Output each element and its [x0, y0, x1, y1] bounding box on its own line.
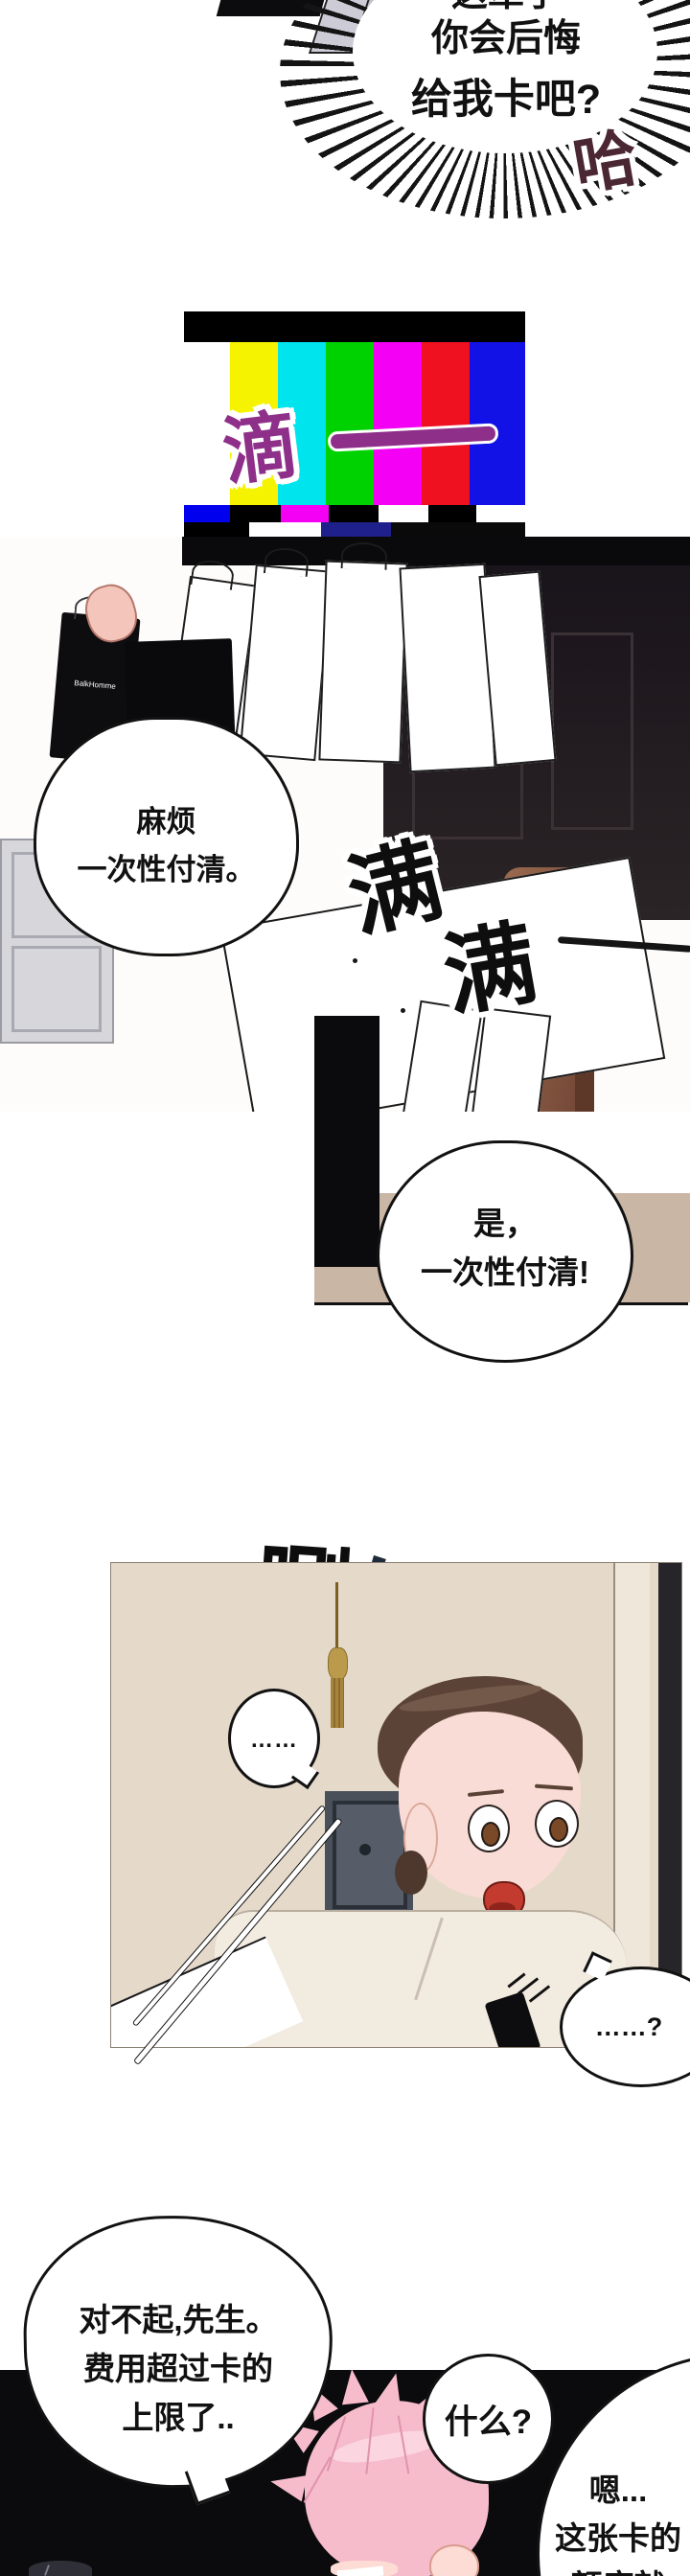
manager-hair: [29, 2561, 92, 2576]
reply-bubble-text: 嗯... 这张卡的 额度就: [546, 2471, 690, 2576]
clerk-iris-left: [481, 1822, 500, 1847]
dark-cabinet-frame1: [333, 1801, 407, 1909]
clerk-eye-right: [535, 1800, 579, 1848]
clerk-iris-right: [549, 1817, 568, 1842]
clerk-eye-left: [468, 1805, 510, 1852]
white-bag-3-handle: [341, 541, 388, 570]
tv-bar-magenta: [374, 342, 422, 505]
tassel-threads: [331, 1678, 344, 1728]
tv-bar-green: [326, 342, 374, 505]
gray-cabinet-square2: [11, 946, 102, 1032]
reply-line2: 这张卡的: [546, 2518, 690, 2560]
white-bag-3: [318, 561, 407, 764]
shout-line-clipped: 这辈子: [372, 0, 640, 10]
reply-line1: 嗯...: [546, 2471, 690, 2512]
sofa-button-1: [353, 958, 357, 963]
tv-bar-red: [422, 342, 470, 505]
confirm-line1: 是，: [384, 1204, 626, 1245]
please-line1: 麻烦: [43, 803, 289, 841]
please-line2: 一次性付清。: [43, 851, 289, 889]
tassel-rope: [335, 1582, 338, 1649]
confirm-bubble-text: 是， 一次性付清!: [384, 1204, 626, 1294]
tassel-ornament: [328, 1647, 348, 1680]
dots-q-bubble-text: ……?: [569, 2011, 688, 2044]
shout-line2: 你会后悔: [372, 15, 640, 64]
black-box-column: [314, 1016, 379, 1267]
sorry-line3: 上限了..: [34, 2398, 323, 2439]
sorry-bubble-text: 对不起,先生。 费用超过卡的 上限了..: [34, 2300, 323, 2439]
tv-b1-white2: [476, 505, 525, 522]
pink-hair-spike-2: [338, 2368, 369, 2405]
tv-bar-white: [134, 342, 230, 505]
sorry-line2: 费用超过卡的: [34, 2349, 323, 2390]
comic-page: 这辈子 你会后悔 给我卡吧? 哈: [0, 0, 690, 2576]
dark-wall-doorframe2: [551, 632, 633, 830]
tv-color-bars: [134, 342, 525, 505]
panel2-top-black-bar: [182, 537, 690, 565]
shout-bubble-text: 这辈子 你会后悔 给我卡吧?: [372, 0, 640, 127]
tv-b1-magenta: [281, 505, 329, 522]
what-bubble-text: 什么?: [426, 2401, 550, 2445]
tv-top-black-bar: [184, 311, 525, 342]
dark-cabinet-knob: [359, 1844, 371, 1855]
white-bag-2: [239, 564, 332, 761]
tv-b1-white1: [379, 505, 428, 522]
tv-b1-black2: [329, 505, 379, 522]
beep-sfx: 滴: [216, 385, 303, 501]
please-bubble-text: 麻烦 一次性付清。: [43, 803, 289, 890]
tv-b1-blue: [184, 505, 230, 522]
sorry-line1: 对不起,先生。: [34, 2300, 323, 2341]
sofa-button-2: [401, 1008, 405, 1013]
dots-bubble-text: ……: [230, 1725, 318, 1755]
tv-b1-black1: [230, 505, 281, 522]
confirm-line2: 一次性付清!: [384, 1253, 626, 1294]
tv-bottom-row1: [184, 505, 525, 522]
reply-line3: 额度就: [546, 2566, 690, 2576]
clerk-hair-bun: [395, 1851, 427, 1895]
tv-b1-black3: [428, 505, 476, 522]
